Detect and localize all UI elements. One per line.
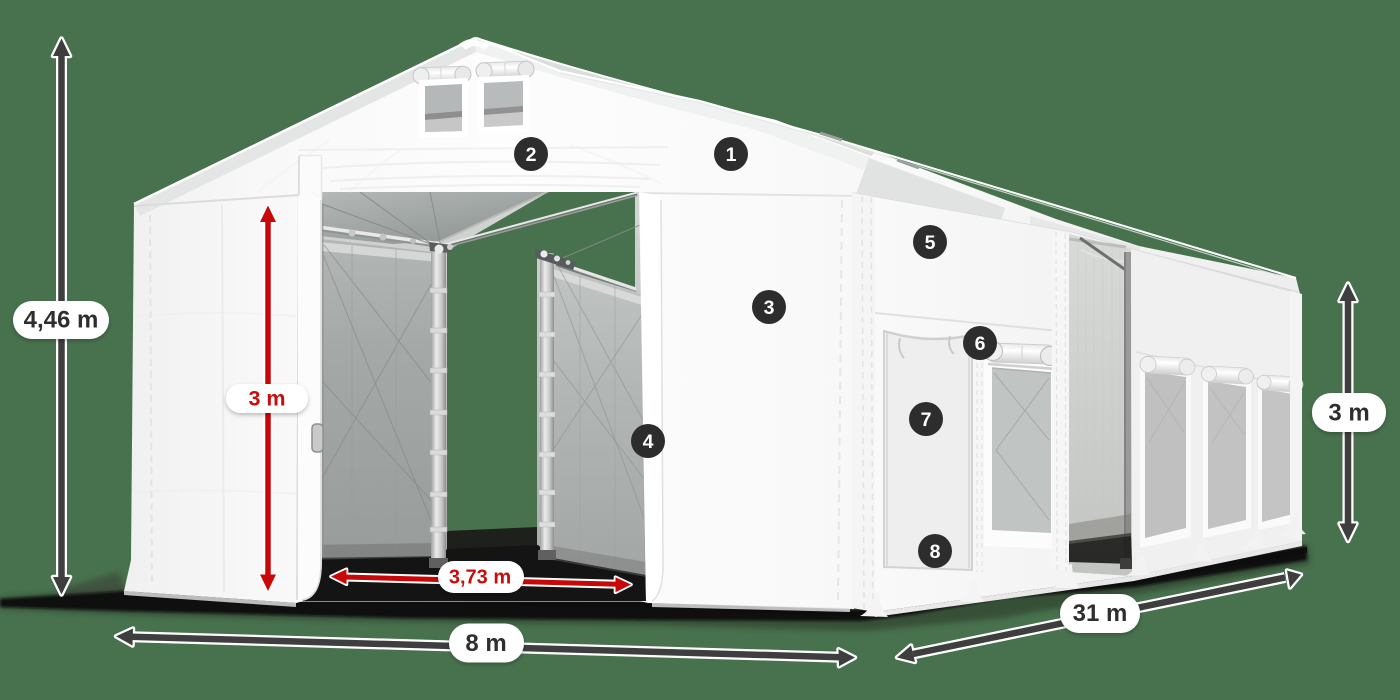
svg-text:7: 7 <box>921 409 932 431</box>
svg-text:31 m: 31 m <box>1073 600 1128 627</box>
svg-text:4: 4 <box>643 431 654 453</box>
svg-text:3: 3 <box>764 297 775 319</box>
svg-text:3,73 m: 3,73 m <box>449 567 511 589</box>
svg-text:8: 8 <box>930 541 941 563</box>
svg-text:6: 6 <box>975 333 986 355</box>
svg-text:8 m: 8 m <box>465 630 506 657</box>
svg-text:2: 2 <box>526 144 537 166</box>
svg-text:4,46 m: 4,46 m <box>24 307 99 334</box>
svg-text:1: 1 <box>726 144 737 166</box>
svg-text:3 m: 3 m <box>248 387 285 411</box>
svg-text:5: 5 <box>925 232 936 254</box>
svg-text:3 m: 3 m <box>1328 399 1369 426</box>
